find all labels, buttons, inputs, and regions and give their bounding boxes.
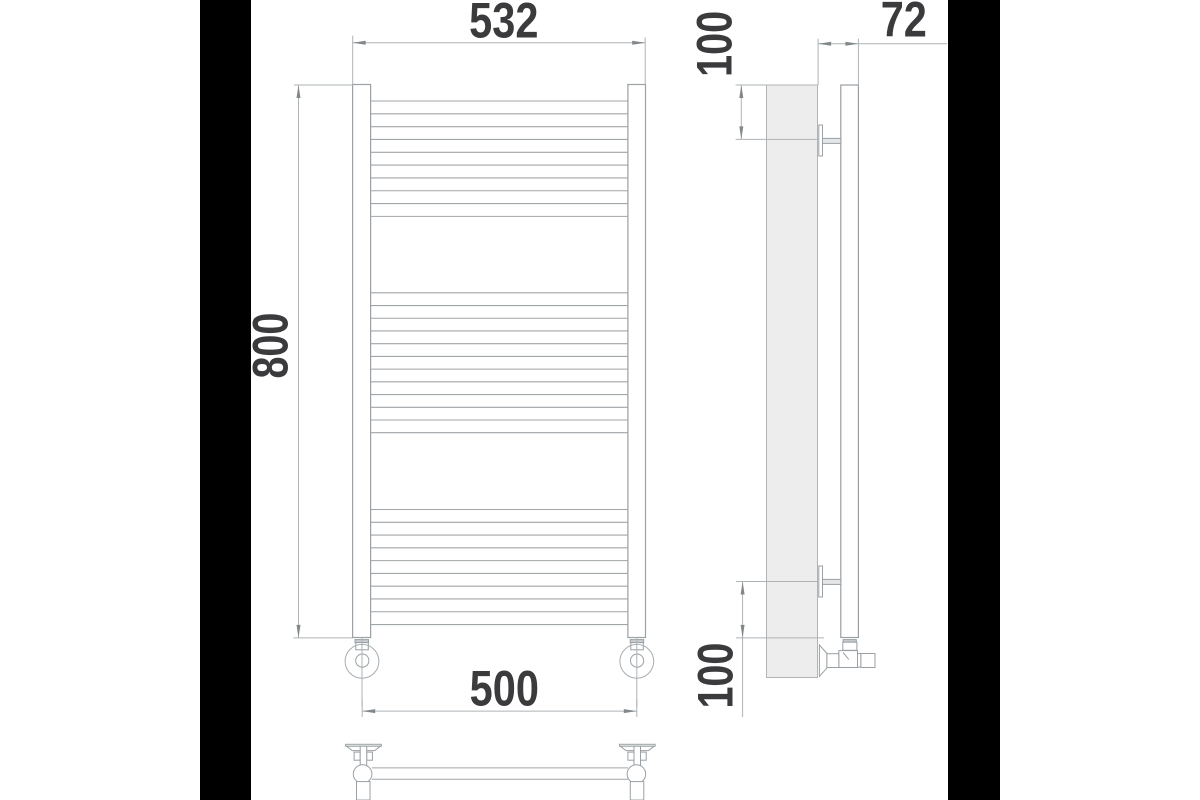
svg-text:72: 72 — [881, 0, 927, 47]
svg-text:100: 100 — [687, 643, 744, 709]
svg-text:100: 100 — [686, 11, 743, 77]
svg-text:532: 532 — [469, 0, 538, 48]
svg-text:500: 500 — [470, 660, 539, 717]
svg-text:800: 800 — [242, 313, 299, 379]
